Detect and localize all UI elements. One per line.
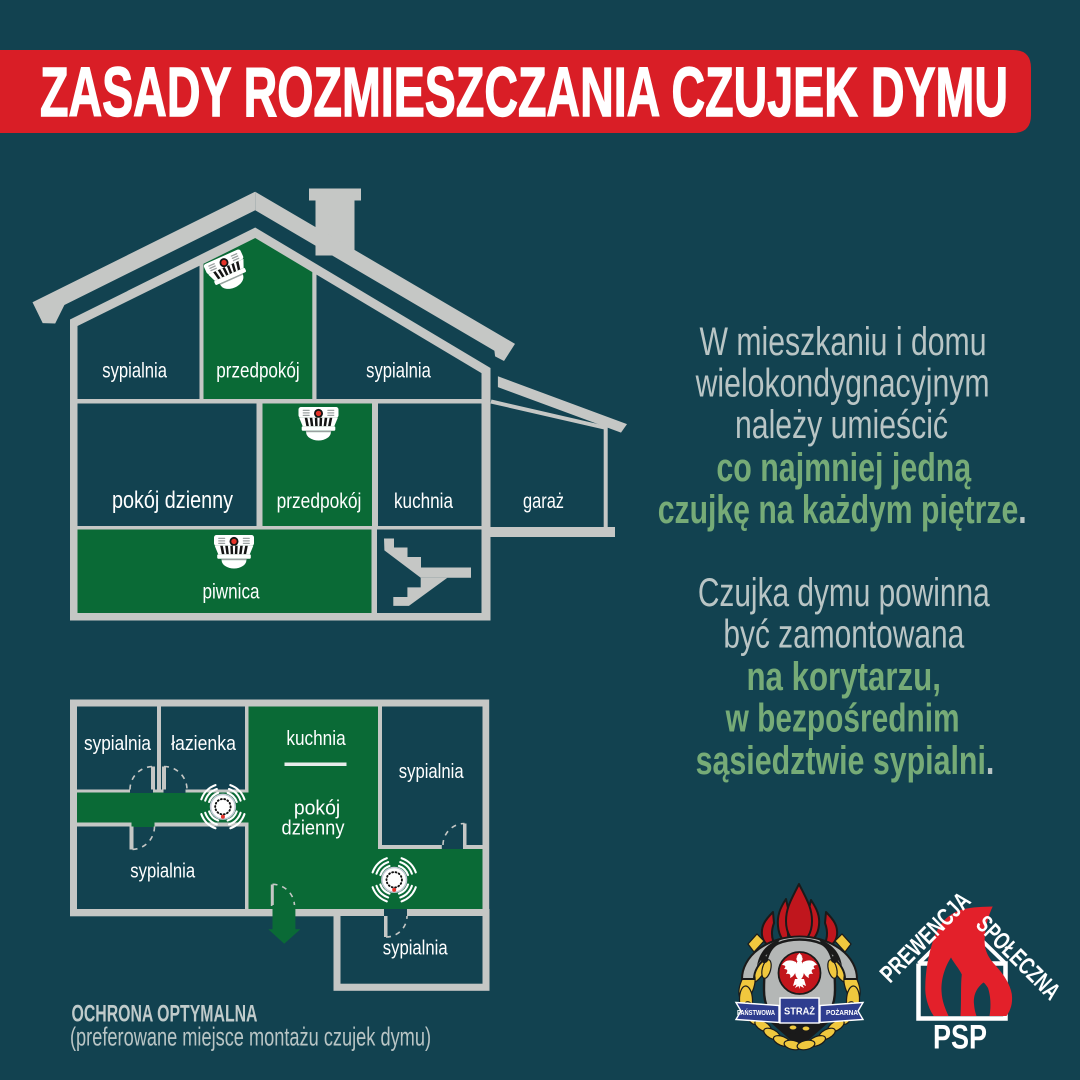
svg-text:dzienny: dzienny	[282, 818, 345, 840]
svg-text:pokój: pokój	[294, 798, 340, 820]
svg-text:W mieszkaniu i domu: W mieszkaniu i domu	[700, 320, 987, 364]
svg-text:kuchnia: kuchnia	[394, 490, 453, 513]
svg-text:piwnica: piwnica	[203, 581, 260, 604]
svg-text:być zamontowana: być zamontowana	[723, 613, 964, 657]
svg-text:STRAŻ: STRAŻ	[784, 1005, 815, 1018]
svg-text:na korytarzu,: na korytarzu,	[746, 655, 941, 699]
svg-text:sypialnia: sypialnia	[383, 938, 449, 960]
svg-text:należy umieścić: należy umieścić	[735, 403, 948, 447]
svg-text:PSP: PSP	[933, 1019, 987, 1057]
svg-text:wielokondygnacyjnym: wielokondygnacyjnym	[695, 362, 990, 406]
svg-text:(preferowane miejsce montażu c: (preferowane miejsce montażu czujek dymu…	[70, 1022, 431, 1052]
svg-text:w bezpośrednim: w bezpośrednim	[725, 697, 960, 741]
svg-text:sypialnia: sypialnia	[102, 360, 167, 383]
svg-text:Czujka dymu powinna: Czujka dymu powinna	[698, 571, 990, 615]
svg-text:sypialnia: sypialnia	[399, 761, 465, 783]
svg-text:łazienka: łazienka	[171, 733, 237, 755]
svg-text:sypialnia: sypialnia	[130, 861, 196, 883]
svg-text:pokój dzienny: pokój dzienny	[112, 487, 234, 514]
svg-text:kuchnia: kuchnia	[286, 728, 346, 750]
svg-text:PAŃSTWOWA: PAŃSTWOWA	[737, 1008, 775, 1017]
svg-text:co najmniej jedną: co najmniej jedną	[716, 446, 971, 490]
svg-text:ZASADY ROZMIESZCZANIA CZUJEK D: ZASADY ROZMIESZCZANIA CZUJEK DYMU	[40, 53, 1008, 131]
svg-text:czujkę na każdym piętrze.: czujkę na każdym piętrze.	[658, 488, 1027, 532]
svg-text:przedpokój: przedpokój	[216, 360, 299, 383]
svg-text:sypialnia: sypialnia	[84, 733, 152, 755]
svg-text:POŻARNA: POŻARNA	[826, 1008, 858, 1017]
svg-text:sypialnia: sypialnia	[366, 360, 431, 383]
svg-text:sąsiedztwie sypialni.: sąsiedztwie sypialni.	[696, 739, 995, 783]
svg-text:garaż: garaż	[523, 490, 564, 513]
svg-text:przedpokój: przedpokój	[277, 490, 362, 513]
